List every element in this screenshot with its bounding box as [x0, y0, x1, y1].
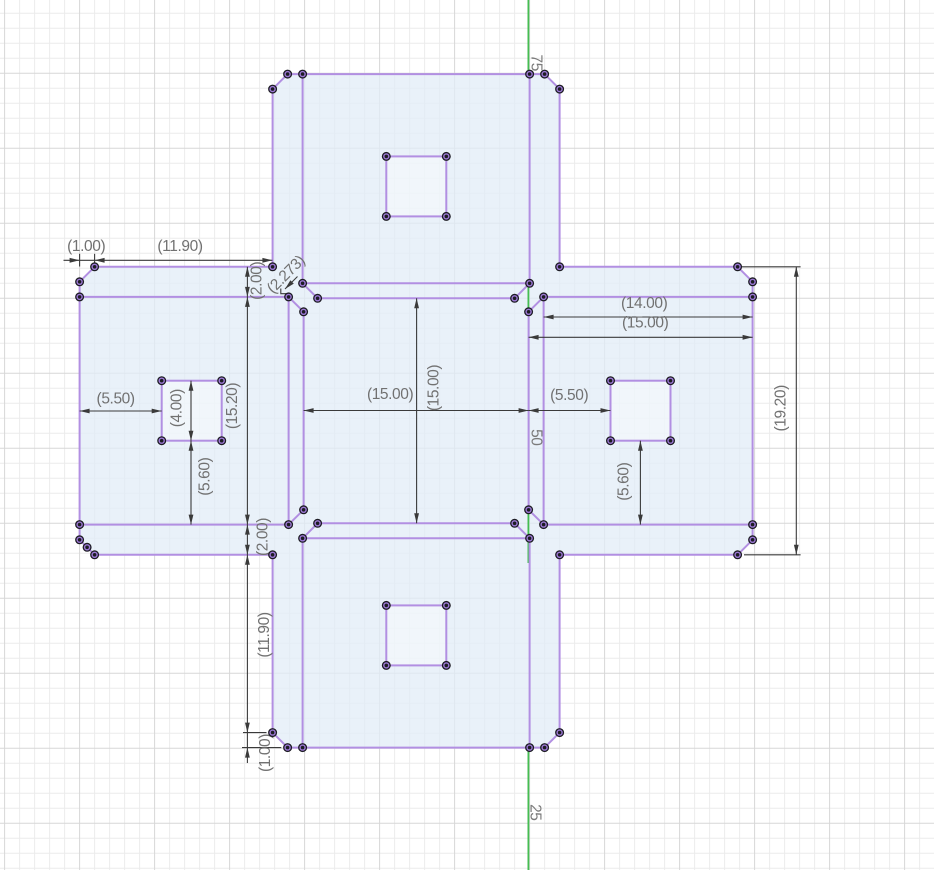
svg-text:(15.20): (15.20) — [224, 383, 241, 430]
svg-text:(4.00): (4.00) — [168, 389, 185, 427]
svg-text:(5.50): (5.50) — [97, 390, 135, 407]
svg-text:25: 25 — [526, 804, 543, 820]
svg-text:(14.00): (14.00) — [621, 295, 668, 312]
svg-text:50: 50 — [528, 429, 545, 446]
svg-text:(5.60): (5.60) — [197, 457, 214, 495]
svg-text:75: 75 — [527, 54, 544, 70]
svg-text:(19.20): (19.20) — [773, 385, 790, 432]
svg-text:(11.90): (11.90) — [256, 612, 273, 657]
svg-text:(15.00): (15.00) — [367, 386, 414, 403]
svg-text:(1.00): (1.00) — [67, 238, 105, 255]
svg-text:(15.00): (15.00) — [622, 315, 669, 332]
svg-text:(2.00): (2.00) — [249, 262, 266, 300]
svg-text:(15.00): (15.00) — [426, 365, 443, 412]
svg-text:(2.00): (2.00) — [255, 518, 272, 556]
svg-text:(1.00): (1.00) — [257, 734, 274, 772]
svg-text:(5.50): (5.50) — [550, 387, 588, 404]
svg-text:(5.60): (5.60) — [616, 462, 633, 500]
svg-text:(11.90): (11.90) — [157, 238, 202, 255]
